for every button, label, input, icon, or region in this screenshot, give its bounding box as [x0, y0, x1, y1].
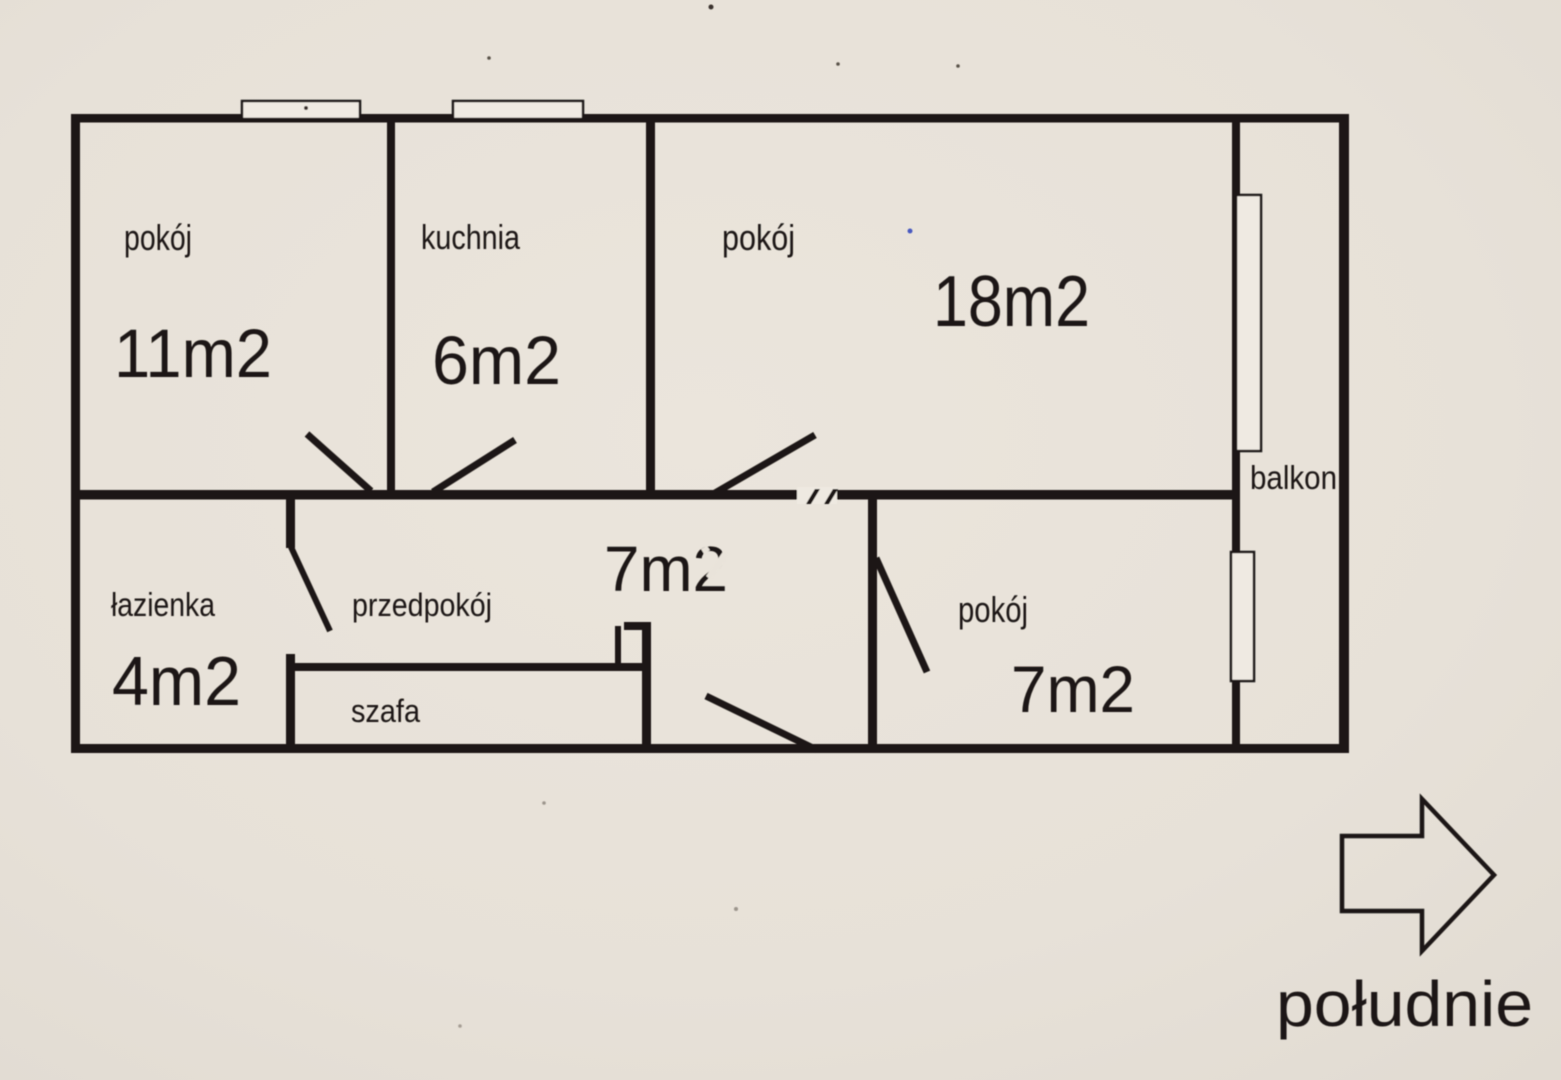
- svg-text:szafa: szafa: [351, 693, 420, 729]
- svg-text:6m2: 6m2: [432, 322, 561, 399]
- svg-text:4m2: 4m2: [112, 642, 241, 720]
- svg-text:7m2: 7m2: [604, 533, 728, 605]
- svg-text:kuchnia: kuchnia: [421, 219, 520, 257]
- svg-text:7m2: 7m2: [1011, 652, 1135, 726]
- svg-text:18m2: 18m2: [933, 262, 1090, 342]
- svg-text:południe: południe: [1276, 968, 1533, 1040]
- svg-text:przedpokój: przedpokój: [352, 587, 492, 623]
- svg-text:łazienka: łazienka: [111, 586, 216, 623]
- svg-text:pokój: pokój: [722, 217, 795, 258]
- svg-text:pokój: pokój: [958, 589, 1028, 630]
- svg-text:pokój: pokój: [124, 217, 192, 258]
- svg-text:balkon: balkon: [1250, 459, 1337, 496]
- svg-text:11m2: 11m2: [114, 315, 272, 392]
